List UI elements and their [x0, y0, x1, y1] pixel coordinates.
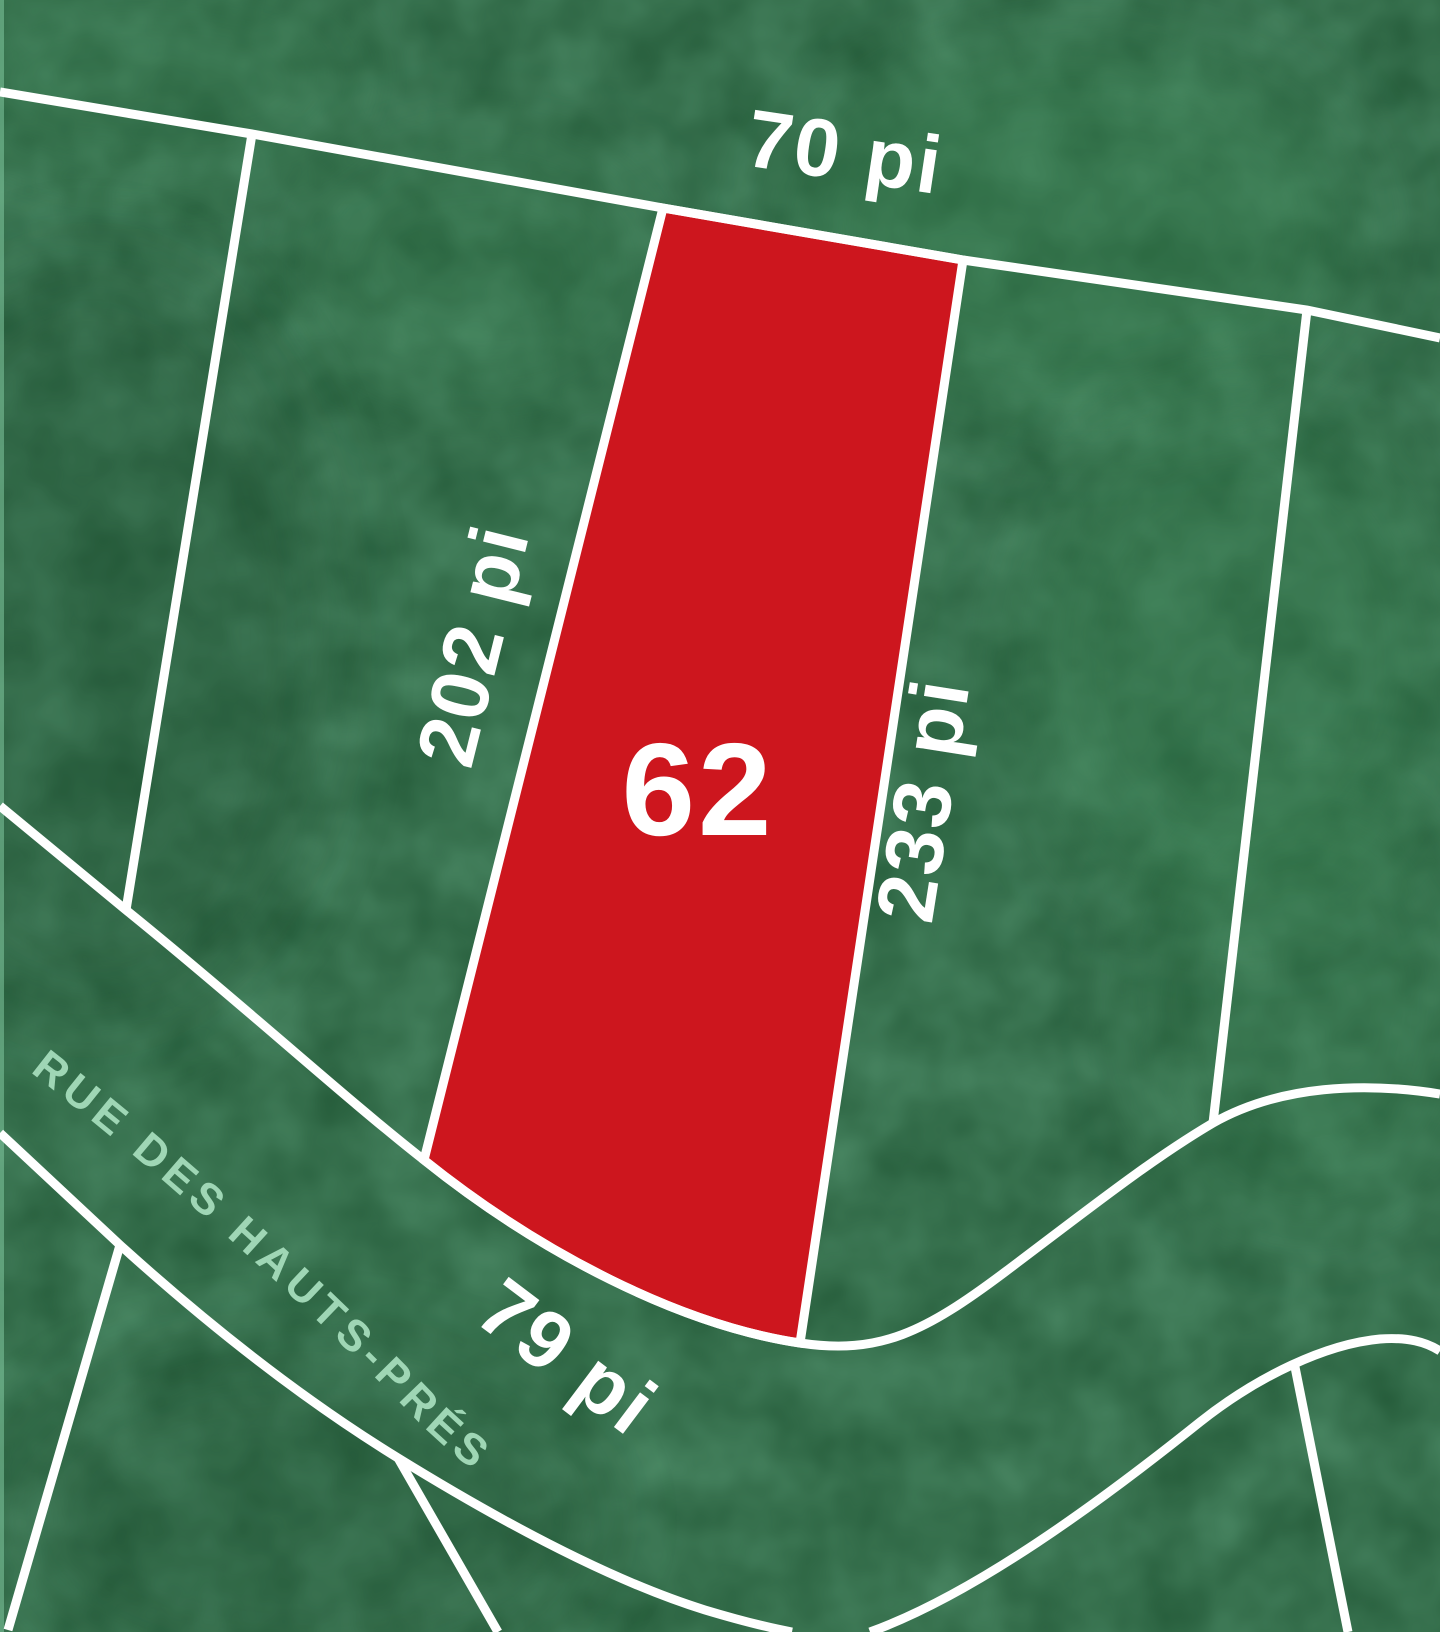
map-edge-strip — [0, 0, 4, 1632]
lot-number-group: 62 — [622, 716, 775, 863]
lot-number-label: 62 — [622, 716, 775, 863]
lot-plan-svg: 70 pi 202 pi 233 pi 79 pi 62 RUE DES HAU… — [0, 0, 1440, 1632]
lot-map: 70 pi 202 pi 233 pi 79 pi 62 RUE DES HAU… — [0, 0, 1440, 1632]
